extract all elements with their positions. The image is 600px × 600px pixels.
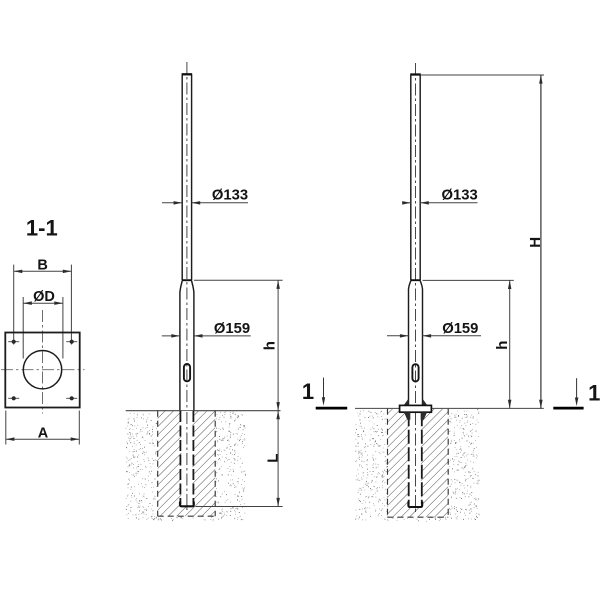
svg-text:Ø133: Ø133 (441, 188, 477, 204)
svg-text:1-1: 1-1 (26, 215, 58, 240)
svg-text:h: h (494, 341, 511, 350)
svg-text:L: L (264, 454, 281, 463)
svg-text:A: A (38, 425, 49, 441)
svg-text:Ø133: Ø133 (212, 188, 248, 204)
svg-text:Ø159: Ø159 (214, 321, 250, 337)
svg-text:1: 1 (302, 379, 314, 404)
svg-text:h: h (262, 341, 279, 350)
svg-text:ØD: ØD (33, 289, 55, 305)
svg-text:1: 1 (588, 380, 600, 405)
svg-text:H: H (527, 237, 544, 248)
svg-text:B: B (37, 257, 47, 273)
svg-text:Ø159: Ø159 (442, 321, 478, 337)
